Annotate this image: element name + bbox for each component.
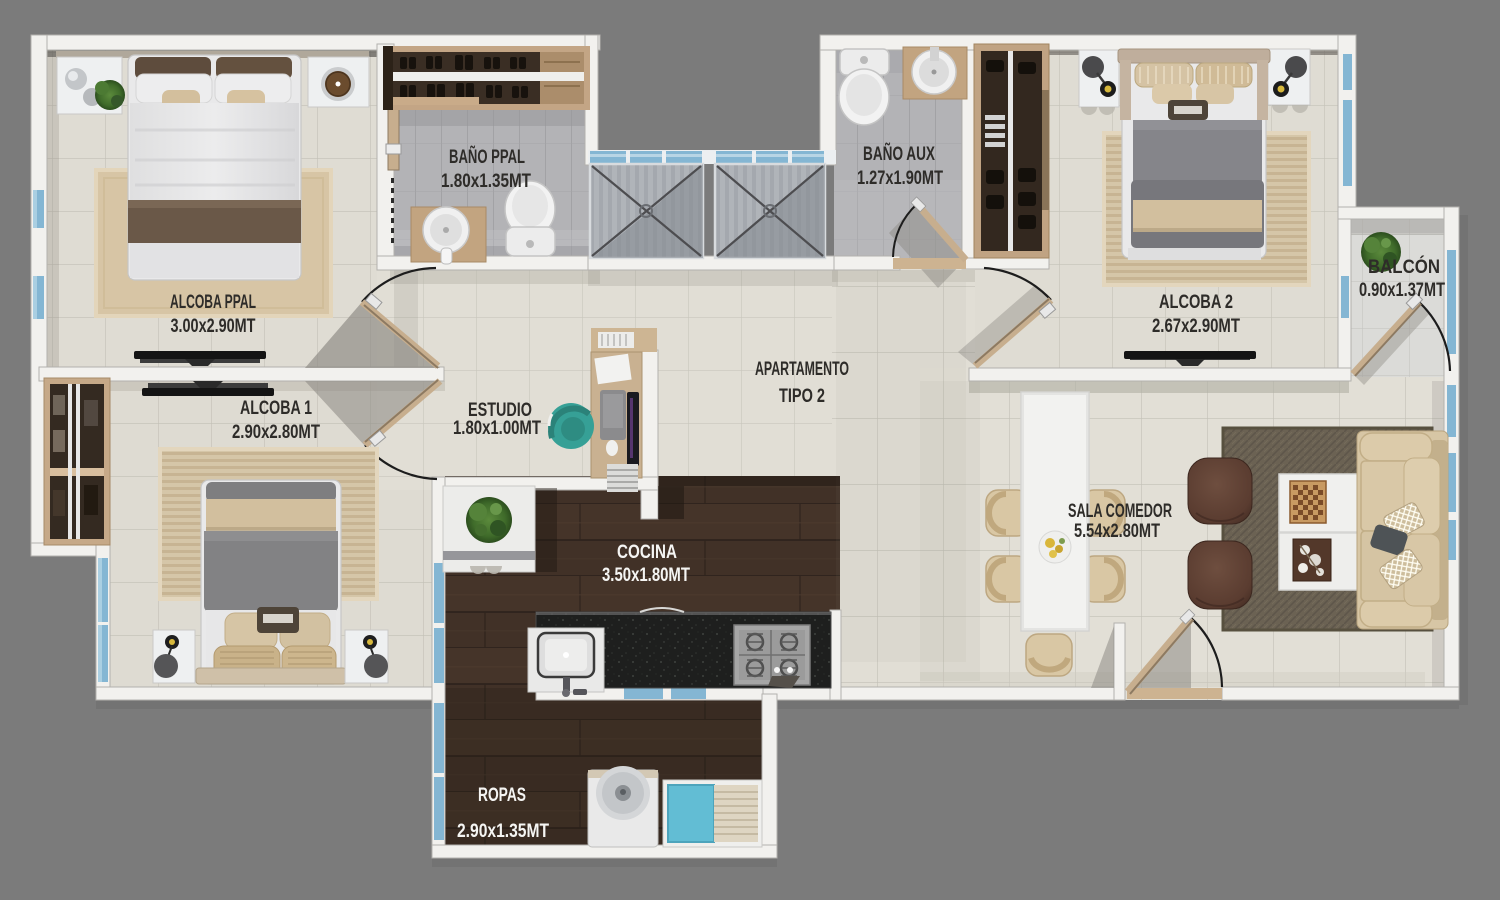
svg-text:BAÑO PPAL: BAÑO PPAL xyxy=(449,146,525,168)
svg-text:ALCOBA 2: ALCOBA 2 xyxy=(1159,292,1233,313)
svg-text:APARTAMENTO: APARTAMENTO xyxy=(755,359,849,380)
svg-text:ALCOBA 1: ALCOBA 1 xyxy=(240,398,312,419)
svg-text:SALA COMEDOR: SALA COMEDOR xyxy=(1068,501,1172,522)
svg-text:1.80x1.35MT: 1.80x1.35MT xyxy=(441,171,531,192)
svg-text:2.67x2.90MT: 2.67x2.90MT xyxy=(1152,316,1240,337)
svg-text:0.90x1.37MT: 0.90x1.37MT xyxy=(1359,280,1445,301)
svg-text:ROPAS: ROPAS xyxy=(478,785,526,806)
svg-text:TIPO 2: TIPO 2 xyxy=(779,386,825,407)
svg-text:5.54x2.80MT: 5.54x2.80MT xyxy=(1074,521,1160,542)
svg-text:BALCÓN: BALCÓN xyxy=(1368,256,1440,278)
svg-text:BAÑO AUX: BAÑO AUX xyxy=(863,143,935,165)
svg-text:COCINA: COCINA xyxy=(617,542,677,563)
svg-text:2.90x2.80MT: 2.90x2.80MT xyxy=(232,422,320,443)
svg-text:3.50x1.80MT: 3.50x1.80MT xyxy=(602,565,690,586)
svg-text:2.90x1.35MT: 2.90x1.35MT xyxy=(457,821,549,842)
svg-text:ALCOBA PPAL: ALCOBA PPAL xyxy=(170,292,256,313)
svg-text:1.27x1.90MT: 1.27x1.90MT xyxy=(857,168,943,189)
svg-text:1.80x1.00MT: 1.80x1.00MT xyxy=(453,418,541,439)
svg-text:3.00x2.90MT: 3.00x2.90MT xyxy=(171,316,256,337)
